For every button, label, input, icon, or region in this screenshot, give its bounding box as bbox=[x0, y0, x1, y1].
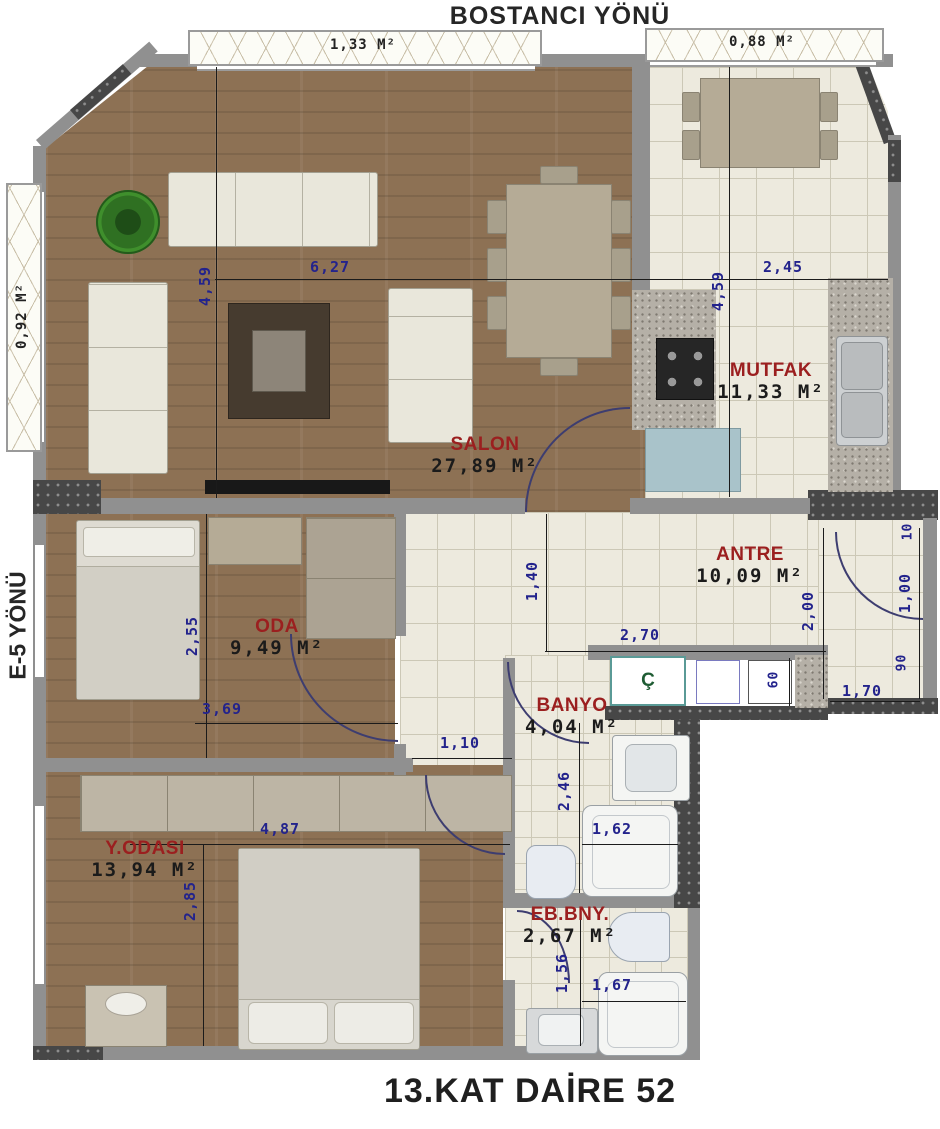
floor-plan: 1,33 M² 0,88 M² 0,92 M² Ç bbox=[0, 0, 940, 1129]
room-name-yodasi: Y.ODASI bbox=[60, 838, 230, 860]
room-area-yodasi: 13,94 M² bbox=[60, 860, 230, 882]
dim-line bbox=[412, 758, 512, 759]
dim-line bbox=[195, 723, 398, 724]
room-label-salon: SALON 27,89 M² bbox=[400, 434, 570, 478]
dim-line bbox=[830, 701, 920, 702]
wall-ebbny-right bbox=[688, 908, 700, 1060]
room-name-mutfak: MUTFAK bbox=[686, 360, 856, 382]
dresser-mirror bbox=[105, 992, 147, 1016]
balcony-left-area: 0,92 M² bbox=[14, 246, 30, 386]
dining-chair bbox=[487, 296, 507, 330]
direction-label-top: BOSTANCI YÖNÜ bbox=[390, 2, 730, 31]
sofa-right bbox=[388, 288, 473, 443]
wall-entry-right bbox=[923, 518, 937, 710]
dim-line bbox=[545, 651, 826, 652]
dining-chair bbox=[487, 248, 507, 282]
room-label-antre: ANTRE 10,09 M² bbox=[665, 544, 835, 588]
dim-salon-w: 6,27 bbox=[298, 258, 362, 276]
room-label-banyo: BANYO 4,04 M² bbox=[487, 695, 657, 739]
pillow bbox=[83, 527, 195, 557]
dim-line bbox=[216, 67, 217, 498]
dim-line bbox=[579, 723, 580, 893]
room-area-oda: 9,49 M² bbox=[192, 638, 362, 660]
pillow bbox=[248, 1002, 328, 1044]
dim-entry-right-h: 1,00 bbox=[896, 561, 914, 625]
dim-corridor-w: 1,10 bbox=[428, 734, 492, 752]
column-right-kitchen bbox=[888, 140, 901, 182]
dim-line bbox=[582, 1001, 686, 1002]
balcony-top-right-area: 0,88 M² bbox=[692, 34, 832, 50]
dim-antre-depth: 1,40 bbox=[523, 549, 541, 613]
room-area-banyo: 4,04 M² bbox=[487, 717, 657, 739]
dim-line bbox=[919, 528, 920, 699]
dim-yodasi-w: 4,87 bbox=[248, 820, 312, 838]
room-name-banyo: BANYO bbox=[487, 695, 657, 717]
ebbny-basin bbox=[538, 1014, 584, 1046]
column-bottom-left bbox=[33, 1046, 103, 1060]
room-label-yodasi: Y.ODASI 13,94 M² bbox=[60, 838, 230, 882]
dining-chair bbox=[540, 166, 578, 184]
room-label-oda: ODA 9,49 M² bbox=[192, 616, 362, 660]
sofa-top bbox=[168, 172, 378, 247]
dim-entry-h: 2,00 bbox=[799, 579, 817, 643]
dim-entry-bottom: 90 bbox=[895, 631, 910, 695]
dining-chair bbox=[611, 248, 631, 282]
dim-mutfak-w: 2,45 bbox=[751, 258, 815, 276]
dim-ebbny-h: 1,56 bbox=[553, 941, 571, 1005]
wall-salon-kitchen bbox=[632, 67, 650, 295]
dim-banyo-shower-w: 1,62 bbox=[580, 820, 644, 838]
dim-banyo-h: 2,46 bbox=[555, 759, 573, 823]
balcony-top-left-area: 1,33 M² bbox=[293, 37, 433, 53]
wall-kitchen-bottom bbox=[630, 498, 810, 514]
tv-unit bbox=[205, 480, 390, 494]
kitchen-chair bbox=[820, 130, 838, 160]
kitchen-chair bbox=[682, 130, 700, 160]
kitchen-table bbox=[700, 78, 820, 168]
dim-line bbox=[215, 279, 888, 280]
wall-salon-bottom bbox=[101, 498, 525, 514]
room-area-salon: 27,89 M² bbox=[400, 456, 570, 478]
dining-chair bbox=[487, 200, 507, 234]
dim-entry-top: 10 bbox=[901, 500, 916, 564]
blanket bbox=[239, 849, 419, 1000]
window-yodasi-left bbox=[33, 806, 46, 984]
dim-mutfak-h: 4,59 bbox=[709, 259, 727, 323]
coffee-table bbox=[252, 330, 306, 392]
dim-salon-h: 4,59 bbox=[196, 254, 214, 318]
dim-oda-w: 3,69 bbox=[190, 700, 254, 718]
banyo-toilet bbox=[526, 845, 576, 899]
room-name-oda: ODA bbox=[192, 616, 362, 638]
kitchen-chair bbox=[682, 92, 700, 122]
dining-chair bbox=[540, 358, 578, 376]
dim-line bbox=[546, 514, 547, 651]
dim-entry-w: 1,70 bbox=[830, 682, 894, 700]
dining-chair bbox=[611, 200, 631, 234]
dim-shaft-h: 60 bbox=[767, 648, 782, 712]
banyo-basin bbox=[625, 744, 677, 792]
dim-antre-w: 2,70 bbox=[608, 626, 672, 644]
plan-title: 13.KAT DAİRE 52 bbox=[220, 1072, 840, 1111]
dim-line bbox=[582, 844, 678, 845]
dim-ebbny-shower-w: 1,67 bbox=[580, 976, 644, 994]
wall-entry-top bbox=[808, 490, 938, 520]
column-left-mid bbox=[33, 480, 101, 514]
room-area-mutfak: 11,33 M² bbox=[686, 382, 856, 404]
room-label-ebbny: EB.BNY. 2,67 M² bbox=[485, 904, 655, 948]
kitchen-chair bbox=[820, 92, 838, 122]
shaft-box-2 bbox=[696, 660, 740, 704]
window-oda-left bbox=[33, 545, 46, 677]
direction-label-left: E-5 YÖNÜ bbox=[5, 546, 32, 706]
room-label-mutfak: MUTFAK 11,33 M² bbox=[686, 360, 856, 404]
dining-table bbox=[506, 184, 612, 358]
dim-line bbox=[789, 658, 790, 706]
shaft-label: Ç bbox=[641, 670, 655, 691]
room-area-antre: 10,09 M² bbox=[665, 566, 835, 588]
desk bbox=[208, 517, 302, 565]
kitchen-counter-low bbox=[645, 428, 741, 492]
sofa-left bbox=[88, 282, 168, 474]
dim-line bbox=[729, 67, 730, 497]
pillow bbox=[334, 1002, 414, 1044]
room-name-antre: ANTRE bbox=[665, 544, 835, 566]
room-name-salon: SALON bbox=[400, 434, 570, 456]
dining-chair bbox=[611, 296, 631, 330]
plant bbox=[96, 190, 160, 254]
room-area-ebbny: 2,67 M² bbox=[485, 926, 655, 948]
wall-oda-yodasi bbox=[33, 758, 413, 772]
blanket bbox=[77, 566, 199, 699]
room-name-ebbny: EB.BNY. bbox=[485, 904, 655, 926]
